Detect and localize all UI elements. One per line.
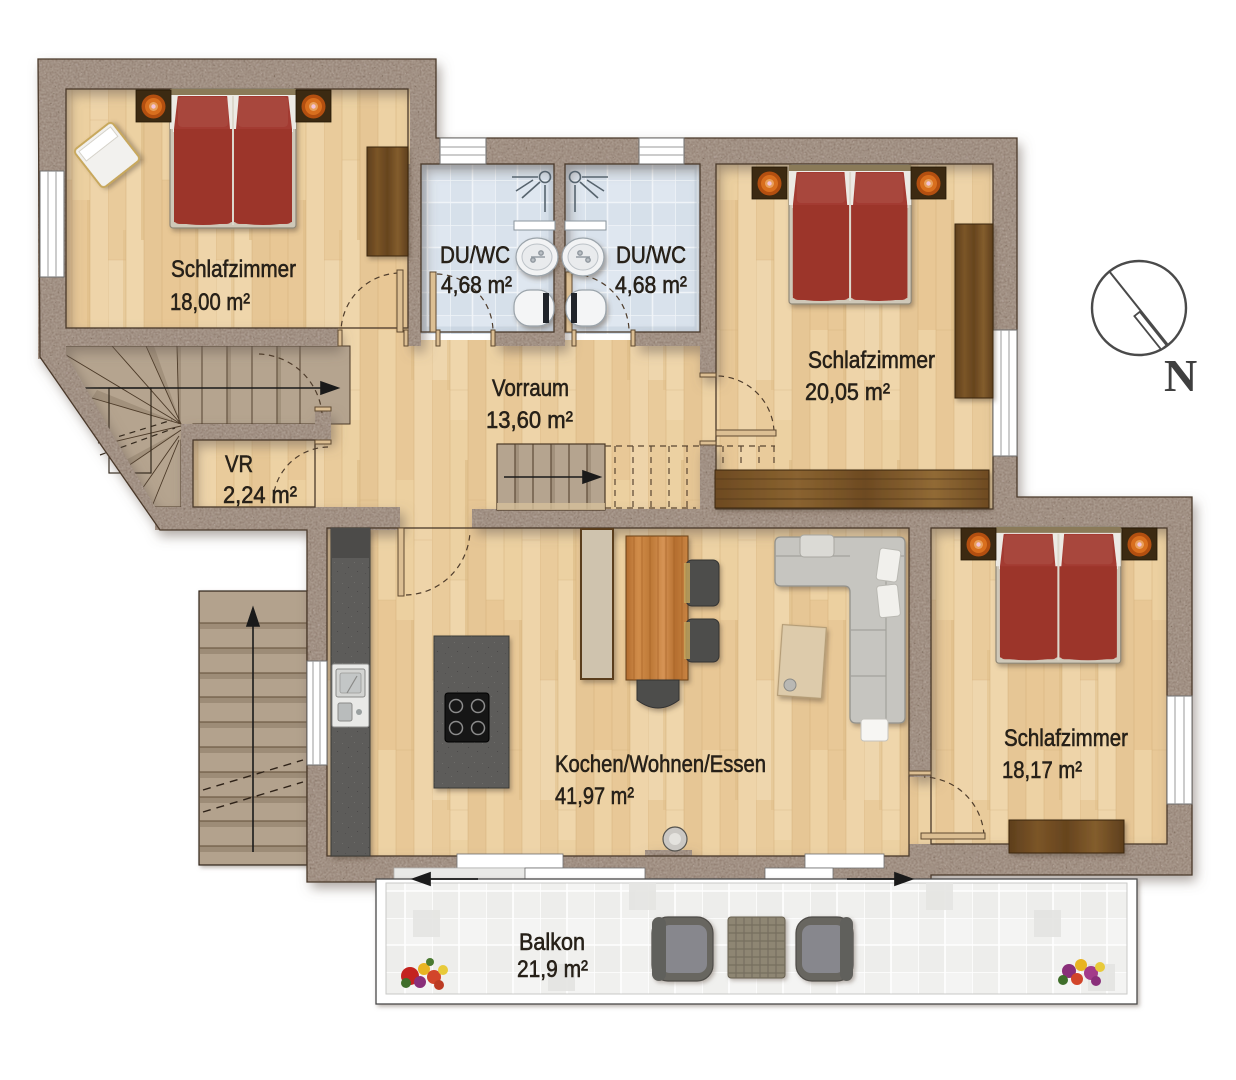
svg-text:Kochen/Wohnen/Essen: Kochen/Wohnen/Essen (555, 751, 766, 778)
svg-text:18,17 m²: 18,17 m² (1002, 757, 1082, 784)
svg-text:4,68 m²: 4,68 m² (441, 272, 512, 299)
svg-text:41,97 m²: 41,97 m² (555, 783, 634, 810)
svg-text:Schlafzimmer: Schlafzimmer (808, 347, 935, 374)
svg-text:4,68 m²: 4,68 m² (615, 272, 687, 299)
svg-text:13,60 m²: 13,60 m² (486, 407, 573, 434)
svg-text:DU/WC: DU/WC (440, 242, 510, 269)
svg-text:DU/WC: DU/WC (616, 242, 686, 269)
svg-text:Schlafzimmer: Schlafzimmer (171, 256, 296, 283)
svg-text:2,24 m²: 2,24 m² (223, 482, 297, 509)
svg-text:N: N (1164, 350, 1197, 401)
svg-text:Vorraum: Vorraum (492, 375, 569, 402)
svg-text:VR: VR (225, 451, 253, 478)
svg-text:Schlafzimmer: Schlafzimmer (1004, 725, 1128, 752)
svg-text:Balkon: Balkon (519, 929, 585, 956)
svg-text:18,00 m²: 18,00 m² (170, 289, 250, 316)
svg-text:20,05 m²: 20,05 m² (805, 379, 890, 406)
svg-text:21,9 m²: 21,9 m² (517, 956, 588, 983)
